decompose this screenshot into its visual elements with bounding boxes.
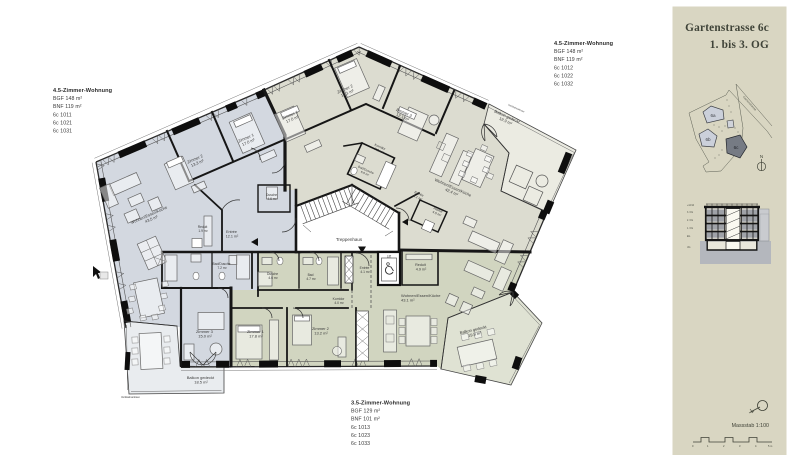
- svg-text:Dusche 4.6 m²: Dusche 4.6 m²: [266, 193, 278, 201]
- svg-text:6b: 6b: [705, 137, 711, 142]
- svg-text:Zimmer 3 15.0 m²: Zimmer 3 15.0 m²: [196, 329, 214, 339]
- svg-text:Gartenstrasse 6c: Gartenstrasse 6c: [685, 22, 769, 34]
- svg-text:Vertikalmarkisen: Vertikalmarkisen: [121, 395, 141, 399]
- svg-text:+12.94: +12.94: [687, 205, 695, 207]
- svg-text:BNF 101 m²: BNF 101 m²: [351, 417, 380, 423]
- svg-text:Massstab 1:100: Massstab 1:100: [732, 423, 769, 429]
- svg-text:6c 1022: 6c 1022: [554, 73, 573, 79]
- svg-text:BNF 119 m²: BNF 119 m²: [554, 57, 583, 63]
- svg-text:1. OG: 1. OG: [687, 228, 693, 230]
- svg-text:Entrée 4.1 m²: Entrée 4.1 m²: [360, 266, 371, 274]
- svg-text:BGF 129 m²: BGF 129 m²: [351, 409, 380, 415]
- svg-text:1. bis 3. OG: 1. bis 3. OG: [710, 39, 769, 51]
- svg-text:EG: EG: [687, 236, 691, 238]
- svg-text:6c: 6c: [734, 145, 740, 150]
- svg-text:Entrée 12.1 m²: Entrée 12.1 m²: [226, 230, 239, 238]
- svg-text:4.5-Zimmer-Wohnung: 4.5-Zimmer-Wohnung: [554, 41, 614, 47]
- svg-text:6c 1012: 6c 1012: [554, 65, 573, 71]
- svg-text:Zimmer 2 13.2 m²: Zimmer 2 13.2 m²: [312, 326, 330, 336]
- svg-text:Lift: Lift: [387, 255, 391, 259]
- svg-text:UG: UG: [687, 247, 691, 249]
- svg-text:6c 1031: 6c 1031: [53, 129, 72, 135]
- svg-text:4.5-Zimmer-Wohnung: 4.5-Zimmer-Wohnung: [53, 88, 113, 94]
- svg-text:6c 1023: 6c 1023: [351, 433, 370, 439]
- svg-text:BGF 148 m²: BGF 148 m²: [554, 49, 583, 55]
- svg-text:N: N: [760, 154, 763, 159]
- svg-text:5 m: 5 m: [768, 444, 772, 448]
- svg-text:Dusche 4.6 m²: Dusche 4.6 m²: [267, 272, 279, 280]
- svg-text:6c 1033: 6c 1033: [351, 441, 370, 447]
- svg-text:Korridor 4.0 m²: Korridor 4.0 m²: [333, 297, 346, 305]
- svg-text:6c 1011: 6c 1011: [53, 112, 72, 118]
- svg-text:6c 1021: 6c 1021: [53, 120, 72, 126]
- svg-text:Reduit 4.9 m²: Reduit 4.9 m²: [415, 263, 427, 271]
- svg-text:Reduit 1.9 m²: Reduit 1.9 m²: [198, 225, 209, 233]
- svg-text:2. OG: 2. OG: [687, 220, 693, 222]
- svg-text:3. OG: 3. OG: [687, 212, 693, 214]
- svg-text:BNF 119 m²: BNF 119 m²: [53, 104, 82, 110]
- svg-text:BGF 148 m²: BGF 148 m²: [53, 96, 82, 102]
- svg-text:6c 1013: 6c 1013: [351, 425, 370, 431]
- svg-text:Zimmer 1 17.8 m²: Zimmer 1 17.8 m²: [247, 329, 265, 339]
- svg-text:3.5-Zimmer-Wohnung: 3.5-Zimmer-Wohnung: [351, 401, 411, 407]
- svg-text:6c 1032: 6c 1032: [554, 82, 573, 88]
- svg-text:6a: 6a: [710, 113, 716, 118]
- svg-text:Treppenhaus: Treppenhaus: [336, 237, 363, 242]
